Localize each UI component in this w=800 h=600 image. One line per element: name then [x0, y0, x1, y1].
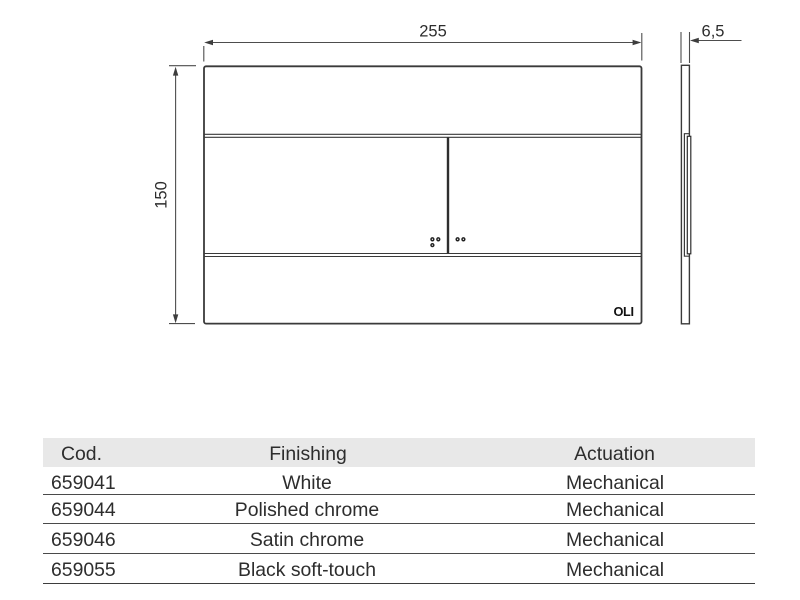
svg-text:150: 150	[153, 181, 171, 209]
svg-text:255: 255	[419, 23, 447, 41]
svg-text:6,5: 6,5	[702, 23, 725, 41]
svg-text:OLI: OLI	[614, 304, 634, 319]
